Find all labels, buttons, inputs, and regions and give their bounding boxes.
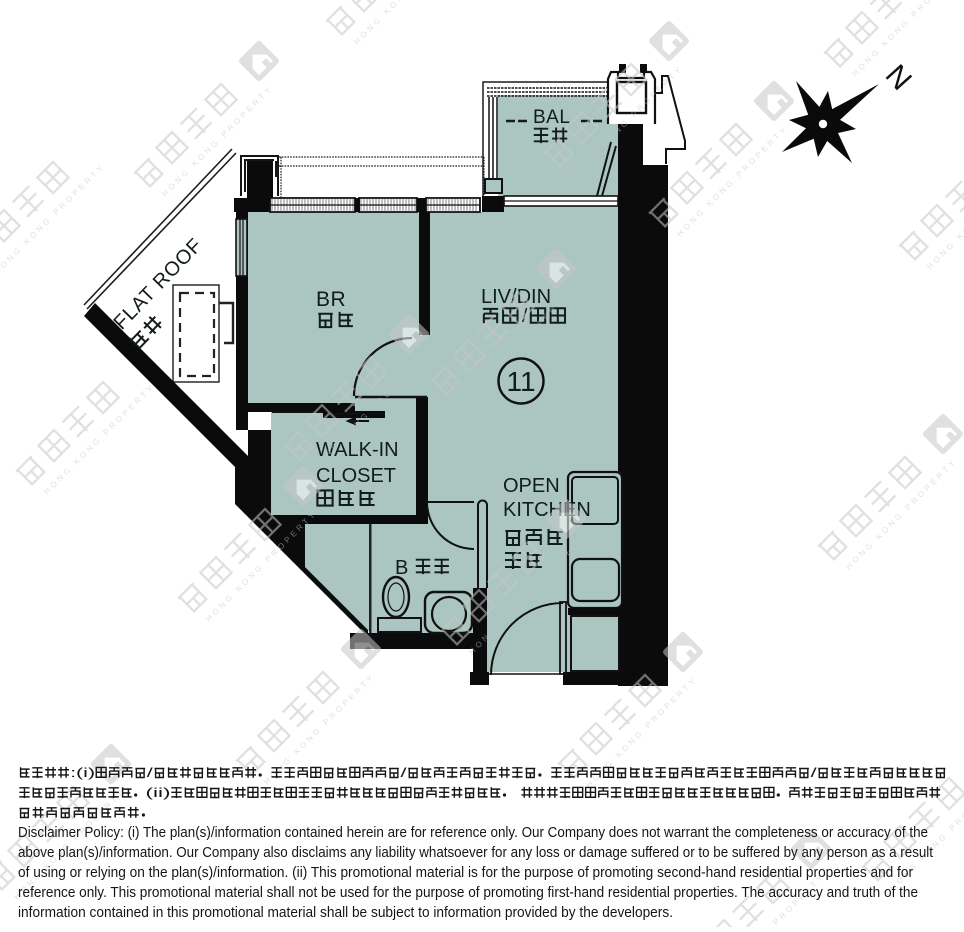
- svg-text:of using or relying on the pla: of using or relying on the plan(s)/infor…: [18, 864, 913, 881]
- svg-text:reference only. This promotion: reference only. This promotional materia…: [18, 884, 918, 901]
- svg-text:/: /: [147, 765, 154, 780]
- svg-text:above plan(s)/information. Our: above plan(s)/information. Our Company a…: [18, 844, 934, 861]
- svg-text:BAL: BAL: [533, 107, 570, 128]
- svg-text:BR: BR: [316, 288, 346, 311]
- svg-text:Disclaimer Policy: (i) The pla: Disclaimer Policy: (i) The plan(s)/infor…: [18, 824, 928, 841]
- svg-text::(i): :(i): [70, 765, 95, 780]
- svg-text:/: /: [401, 765, 408, 780]
- svg-text:(ii): (ii): [146, 785, 171, 800]
- svg-text:11: 11: [506, 366, 535, 397]
- svg-text:B: B: [395, 557, 408, 579]
- svg-text:OPEN: OPEN: [503, 475, 560, 497]
- svg-text:/: /: [811, 765, 818, 780]
- svg-text:CLOSET: CLOSET: [316, 465, 396, 487]
- svg-text:information contained in this: information contained in this promotiona…: [18, 904, 673, 921]
- svg-text:N: N: [879, 59, 918, 97]
